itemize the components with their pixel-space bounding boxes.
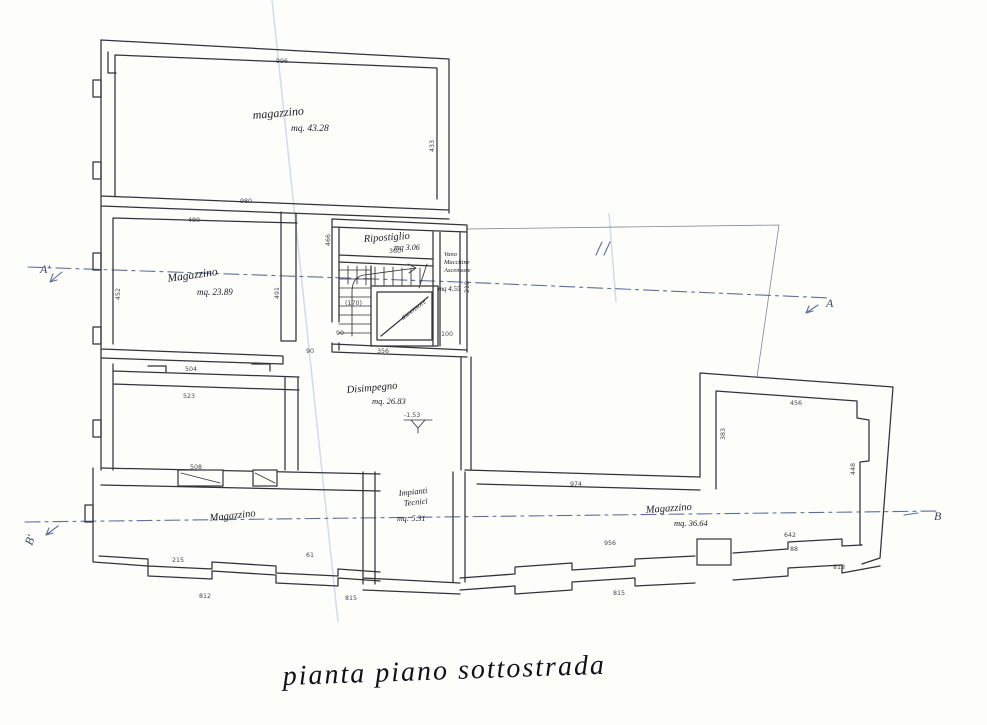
dim: 815: [613, 590, 625, 597]
dim: 218: [464, 281, 471, 293]
section-label-a-prime: A': [39, 262, 50, 276]
wall-pier: [697, 539, 731, 565]
dim: 956: [604, 540, 616, 547]
dim: 980: [240, 198, 252, 205]
dim: 996: [276, 58, 288, 65]
dim: 523: [183, 393, 195, 400]
dim: 452: [115, 288, 122, 300]
section-label-b: B: [934, 509, 942, 523]
dim: 88: [790, 546, 798, 553]
room-area-magazzino-left: mq. 23.89: [197, 287, 233, 297]
dim: 504: [185, 366, 197, 373]
dim: 215: [172, 557, 184, 564]
dim: 818: [833, 564, 845, 571]
stair-run-note: (170): [345, 300, 362, 307]
room-area-impianti: mq: 5.31: [397, 514, 425, 523]
dim: 100: [441, 331, 453, 338]
room-area-disimpegno: mq. 26.83: [372, 396, 406, 406]
dim: 433: [429, 140, 436, 152]
level-value: -1.53: [404, 412, 420, 419]
paper-background: [0, 0, 987, 725]
room-area-magazzino-bottom-right: mq. 36.64: [674, 518, 709, 528]
dim: 642: [784, 532, 796, 539]
room-area-vano: mq 4.55: [438, 285, 461, 293]
room-area-magazzino-top: mq. 43.28: [291, 124, 329, 134]
floor-plan-drawing: -1.53 magazzino mq. 43.28 Magazzino mq. …: [0, 0, 987, 725]
dim: 90: [336, 330, 344, 337]
dim: 448: [850, 463, 857, 475]
dim: 356: [377, 348, 389, 355]
room-label-vano-1: Vano: [444, 251, 458, 258]
dim: 812: [199, 593, 211, 600]
dim: 974: [570, 481, 582, 488]
dim: 815: [345, 595, 357, 602]
scanned-floor-plan-page: -1.53 magazzino mq. 43.28 Magazzino mq. …: [0, 0, 987, 725]
dim: 360: [389, 248, 401, 255]
dim: 508: [190, 464, 202, 471]
dim: 491: [274, 287, 281, 299]
dim: 480: [188, 217, 200, 224]
room-label-vano-3: Ascensore: [443, 267, 471, 274]
room-label-vano-2: Macchine: [443, 259, 470, 266]
section-label-a: A: [825, 296, 834, 310]
dim: 456: [790, 400, 802, 407]
dim: 466: [325, 234, 332, 246]
dim: 90: [306, 348, 314, 355]
dim: 61: [306, 552, 314, 559]
dim: 383: [720, 428, 727, 440]
